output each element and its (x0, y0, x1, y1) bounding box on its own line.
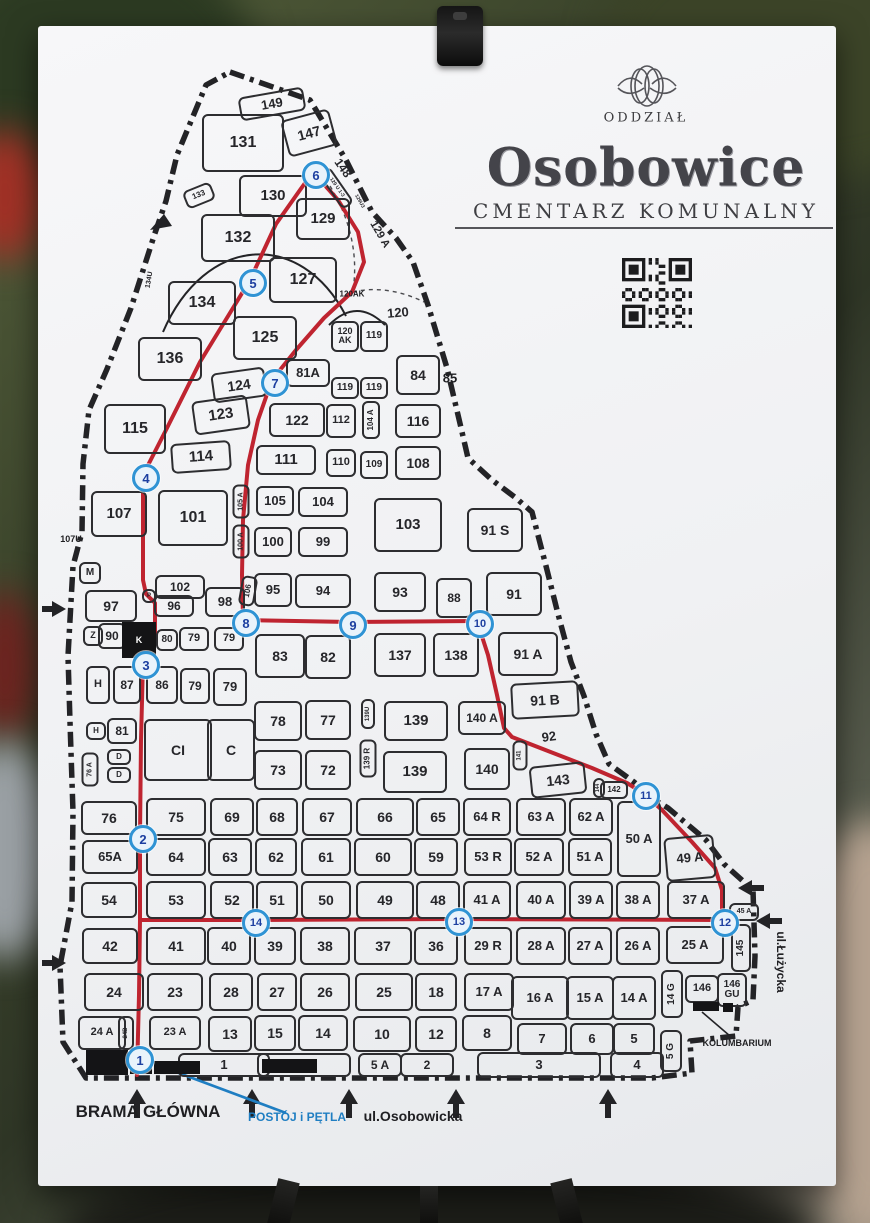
map-section-66: 66 (356, 798, 414, 836)
map-section-104-a: 104 A (362, 401, 380, 439)
map-section-15: 15 (254, 1015, 296, 1051)
map-section-105: 105 (256, 486, 294, 516)
map-section-54: 54 (81, 882, 137, 918)
map-section-ci: CI (144, 719, 212, 781)
map-section-110: 110 (326, 449, 356, 477)
photo-of-cemetery-map-board: { "board": { "oddzial": "ODDZIAŁ", "name… (0, 0, 870, 1223)
map-section-139: 139 (383, 751, 447, 793)
map-section-62: 62 (255, 838, 297, 876)
map-section-63-a: 63 A (516, 798, 566, 836)
map-section-111: 111 (256, 445, 316, 475)
map-section-119: 119 (360, 377, 388, 399)
map-section-107: 107 (91, 491, 147, 537)
route-point-1: 1 (126, 1046, 154, 1074)
map-section-78: 78 (254, 701, 302, 741)
map-section-91-b: 91 B (510, 680, 580, 720)
map-section-14: 14 (298, 1015, 348, 1051)
map-section-99: 99 (298, 527, 348, 557)
map-section-97: 97 (85, 590, 137, 622)
map-section-109: 109 (360, 451, 388, 479)
map-label-kolumbarium: KOLUMBARIUM (703, 1038, 772, 1048)
map-section-17-a: 17 A (464, 973, 514, 1011)
map-section-23-a: 23 A (149, 1016, 201, 1050)
route-point-12: 12 (711, 909, 739, 937)
map-section-76-a: 76 A (82, 752, 99, 786)
black-structure (723, 1003, 733, 1012)
map-section-d: D (107, 749, 131, 765)
map-section-24b: 24B (118, 1016, 134, 1050)
map-section-81a: 81A (286, 359, 330, 387)
map-section-38-a: 38 A (616, 881, 660, 919)
route-point-2: 2 (129, 825, 157, 853)
map-section-119: 119 (331, 377, 359, 399)
direction-arrow-up (447, 1089, 465, 1104)
map-section-6: 6 (570, 1023, 614, 1055)
map-section-77: 77 (305, 700, 351, 740)
route-point-3: 3 (132, 651, 160, 679)
map-section-140-a: 140 A (458, 701, 506, 735)
qr-code (622, 258, 692, 328)
map-section-112: 112 (326, 404, 356, 438)
map-section-88: 88 (436, 578, 472, 618)
map-section-142: 142 (600, 781, 628, 799)
map-section-42: 42 (82, 928, 138, 964)
map-section-24: 24 (84, 973, 144, 1011)
map-section-91: 91 (486, 572, 542, 616)
map-section-137: 137 (374, 633, 426, 677)
map-section-136: 136 (138, 337, 202, 381)
map-section-120-ak: 120 AK (331, 321, 359, 352)
map-section-73: 73 (254, 750, 302, 790)
title-ornament (612, 62, 682, 110)
map-section-79: 79 (213, 668, 247, 706)
map-section-53-r: 53 R (464, 838, 512, 876)
route-point-11: 11 (632, 782, 660, 810)
map-section-c: C (207, 719, 255, 781)
map-section-138: 138 (433, 633, 479, 677)
route-point-13: 13 (445, 908, 473, 936)
map-section-40-a: 40 A (516, 881, 566, 919)
map-section-84: 84 (396, 355, 440, 395)
map-section-16-a: 16 A (511, 976, 569, 1020)
map-section-3: 3 (477, 1052, 601, 1078)
map-section-62-a: 62 A (569, 798, 613, 836)
map-section-h: H (86, 722, 106, 740)
map-section-115: 115 (104, 404, 166, 454)
map-section-93: 93 (374, 572, 426, 612)
map-section-68: 68 (256, 798, 298, 836)
map-section-10: 10 (353, 1016, 411, 1052)
map-section-51-a: 51 A (568, 838, 612, 876)
direction-arrow-left (738, 880, 752, 896)
map-section-76: 76 (81, 801, 137, 835)
map-section-28-a: 28 A (516, 927, 566, 965)
map-label-brama-główna: BRAMA GŁÓWNA (76, 1102, 221, 1122)
map-section-40: 40 (207, 927, 251, 965)
map-section-139-r: 139 R (360, 739, 377, 777)
map-section-5-a: 5 A (358, 1053, 402, 1077)
map-section-13: 13 (208, 1016, 252, 1052)
map-section-82: 82 (305, 635, 351, 679)
route-point-4: 4 (132, 464, 160, 492)
route-point-5: 5 (239, 269, 267, 297)
map-section-72: 72 (305, 750, 351, 790)
map-section-79: 79 (180, 668, 210, 704)
map-section-53: 53 (146, 881, 206, 919)
map-section-15-a: 15 A (566, 976, 614, 1020)
black-structure (693, 1002, 719, 1011)
map-label-107u: 107U (60, 534, 82, 544)
map-section-26: 26 (300, 973, 350, 1011)
map-section-140: 140 (464, 748, 510, 790)
map-section-p: P (142, 589, 156, 603)
map-section-69: 69 (210, 798, 254, 836)
route-point-6: 6 (302, 161, 330, 189)
map-section-h: H (86, 666, 110, 704)
map-section-67: 67 (302, 798, 352, 836)
map-section-39-a: 39 A (569, 881, 613, 919)
map-section-94: 94 (295, 574, 351, 608)
route-point-8: 8 (232, 609, 260, 637)
map-section-37: 37 (354, 927, 412, 965)
map-section-26-a: 26 A (616, 927, 660, 965)
map-section-134: 134 (168, 281, 236, 325)
map-section-65: 65 (416, 798, 460, 836)
map-section-81: 81 (107, 718, 137, 744)
map-section-100-a: 100 A (233, 524, 250, 558)
map-section-95: 95 (254, 573, 292, 607)
map-section-143: 143 (528, 761, 587, 799)
map-section-120: 120 (379, 299, 417, 326)
cemetery-map: 149147131148129 U 1-3129U3130129129 A133… (0, 0, 870, 1223)
direction-arrow-sw (150, 214, 172, 230)
map-section-60: 60 (354, 838, 412, 876)
map-label-ul-łużycka: ul.Łużycka (774, 931, 788, 992)
map-section-125: 125 (233, 316, 297, 360)
map-section-91-a: 91 A (498, 632, 558, 676)
map-section-101: 101 (158, 490, 228, 546)
black-structure (154, 1061, 200, 1074)
map-section-141: 141 (513, 740, 528, 770)
direction-arrow-up (340, 1089, 358, 1104)
map-section-146: 146 (685, 975, 719, 1003)
map-section-12: 12 (415, 1016, 457, 1052)
map-section-41: 41 (146, 927, 206, 965)
map-section-25: 25 (355, 973, 413, 1011)
map-section-132: 132 (201, 214, 275, 262)
map-section-146-gu: 146 GU (717, 973, 747, 1007)
map-section-18: 18 (415, 973, 457, 1011)
route-point-9: 9 (339, 611, 367, 639)
map-section-8: 8 (462, 1015, 512, 1051)
map-section-116: 116 (395, 404, 441, 438)
map-section-105-a: 105 A (233, 484, 250, 518)
map-label-ul-osobowicka: ul.Osobowicka (364, 1108, 463, 1124)
map-section-52-a: 52 A (514, 838, 564, 876)
map-section-75: 75 (146, 798, 206, 836)
direction-arrow-right (52, 601, 66, 617)
map-section-23: 23 (147, 973, 203, 1011)
map-label-120ak: 120AK (340, 290, 365, 299)
map-section-127: 127 (269, 257, 337, 303)
map-section-103: 103 (374, 498, 442, 552)
map-section-108: 108 (395, 446, 441, 480)
map-section-129: 129 (296, 198, 350, 240)
map-section-27: 27 (257, 973, 297, 1011)
map-section-131: 131 (202, 114, 284, 172)
map-section-5: 5 (613, 1023, 655, 1055)
route-point-14: 14 (242, 909, 270, 937)
map-section-64-r: 64 R (463, 798, 511, 836)
black-structure (86, 1050, 128, 1075)
map-section-122: 122 (269, 403, 325, 437)
map-section-29-r: 29 R (464, 927, 512, 965)
map-section-14-g: 14 G (661, 970, 683, 1018)
map-section-83: 83 (255, 634, 305, 678)
map-section-m: M (79, 562, 101, 584)
map-label-85: 85 (443, 371, 457, 386)
black-structure (262, 1059, 317, 1073)
map-section-2: 2 (400, 1053, 454, 1077)
map-section-4: 4 (610, 1052, 664, 1078)
map-section-100: 100 (254, 527, 292, 557)
map-section-27-a: 27 A (568, 927, 612, 965)
map-label-postój-i-pętla: POSTÓJ i PĘTLA (248, 1110, 346, 1124)
map-section-49-a: 49 A (663, 834, 717, 882)
map-section-114: 114 (170, 440, 232, 474)
map-section-50-a: 50 A (617, 801, 661, 877)
map-section-7: 7 (517, 1023, 567, 1055)
map-section-79: 79 (179, 627, 209, 651)
map-section-80: 80 (156, 629, 178, 651)
map-section-59: 59 (414, 838, 458, 876)
direction-arrow-up (599, 1089, 617, 1104)
map-section-50: 50 (301, 881, 351, 919)
map-section-139u: 139U (361, 699, 375, 729)
map-section-38: 38 (300, 927, 350, 965)
map-section-139: 139 (384, 701, 448, 741)
map-section-d: D (107, 767, 131, 783)
route-point-10: 10 (466, 610, 494, 638)
map-section-49: 49 (356, 881, 414, 919)
map-section-63: 63 (208, 838, 252, 876)
map-section-96: 96 (154, 595, 194, 617)
map-section-91-s: 91 S (467, 508, 523, 552)
map-section-104: 104 (298, 487, 348, 517)
map-section-28: 28 (209, 973, 253, 1011)
map-section-61: 61 (301, 838, 351, 876)
route-point-7: 7 (261, 369, 289, 397)
map-section-14-a: 14 A (612, 976, 656, 1020)
